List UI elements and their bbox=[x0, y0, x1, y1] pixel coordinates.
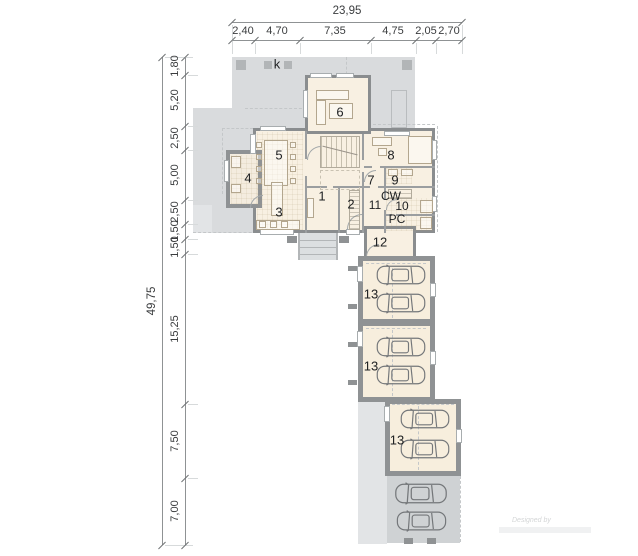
toilet bbox=[231, 156, 241, 168]
porch-column bbox=[339, 236, 349, 243]
garage-door-gap bbox=[357, 266, 363, 282]
partition-wall bbox=[362, 134, 364, 160]
chair bbox=[290, 142, 296, 148]
washer bbox=[420, 200, 433, 213]
window bbox=[384, 131, 410, 136]
car-icon bbox=[376, 292, 426, 314]
garage-window bbox=[456, 429, 462, 443]
roof-dash-line bbox=[373, 124, 435, 125]
dim-extension bbox=[188, 224, 198, 225]
dim-left-seg-8: 7,50 bbox=[169, 430, 181, 451]
partition-wall bbox=[378, 186, 435, 188]
dim-left-total-line bbox=[162, 57, 163, 545]
dim-extension bbox=[188, 254, 198, 255]
garage-label-13a: 13 bbox=[364, 287, 378, 302]
dim-top-total: 23,95 bbox=[333, 5, 362, 17]
floor-plan-canvas: k bbox=[0, 0, 638, 556]
bath-fixture bbox=[401, 169, 413, 176]
dim-extension bbox=[188, 126, 198, 127]
dim-left-seg-0: 1,80 bbox=[169, 55, 181, 76]
bed bbox=[408, 136, 432, 164]
dim-extension bbox=[188, 404, 198, 405]
wall-stub bbox=[348, 266, 357, 271]
car-icon bbox=[396, 510, 447, 532]
partition-wall bbox=[364, 166, 372, 168]
entrance-steps bbox=[298, 233, 338, 260]
dim-extension bbox=[371, 43, 372, 54]
bay-dash bbox=[392, 404, 454, 405]
room-label-4: 4 bbox=[244, 171, 251, 186]
chair bbox=[290, 154, 296, 160]
partition-wall bbox=[384, 168, 386, 186]
garage-window bbox=[430, 283, 436, 297]
dim-extension bbox=[300, 43, 301, 54]
car-icon bbox=[376, 336, 426, 358]
car-icon bbox=[400, 438, 450, 460]
chair bbox=[378, 148, 387, 156]
column-mark-label: k bbox=[274, 57, 281, 72]
dim-left-seg-6: 1,50 bbox=[169, 236, 181, 257]
basin bbox=[231, 184, 241, 193]
boiler bbox=[420, 217, 432, 229]
chair bbox=[256, 142, 262, 148]
dim-extension bbox=[416, 43, 417, 54]
dim-top-seg-2: 7,35 bbox=[324, 25, 345, 37]
chair bbox=[290, 178, 296, 184]
dim-top-seg-4: 2,05 bbox=[415, 25, 436, 37]
garage-door-gap bbox=[357, 331, 363, 347]
dim-top-seg-1: 4,70 bbox=[266, 25, 287, 37]
room-label-1: 1 bbox=[318, 189, 325, 204]
hall-bench bbox=[307, 198, 314, 218]
garage-label-13b: 13 bbox=[364, 359, 378, 374]
window bbox=[310, 73, 332, 78]
garage-label-13c: 13 bbox=[390, 433, 404, 448]
parking-walkway bbox=[368, 474, 387, 543]
window bbox=[224, 160, 229, 182]
room-label-pc: PC bbox=[389, 212, 406, 226]
watermark-blur-bar bbox=[499, 527, 591, 533]
room-label-5: 5 bbox=[275, 148, 282, 163]
wall-stub bbox=[348, 342, 357, 347]
bay-dash bbox=[366, 328, 426, 329]
chair bbox=[290, 166, 296, 172]
partition-wall bbox=[380, 166, 435, 168]
terrace-column bbox=[236, 60, 246, 70]
car-icon bbox=[376, 364, 426, 386]
walkway-notch bbox=[193, 205, 212, 233]
dim-left-segment-line bbox=[185, 57, 186, 545]
window bbox=[432, 140, 437, 160]
sofa bbox=[316, 90, 349, 100]
dim-top-segment-line bbox=[232, 40, 462, 41]
window bbox=[260, 126, 286, 131]
sofa bbox=[316, 100, 326, 125]
appliance bbox=[270, 221, 277, 228]
garage-door-gap bbox=[384, 406, 390, 422]
car-icon bbox=[400, 408, 450, 430]
room-label-9: 9 bbox=[391, 173, 398, 188]
window bbox=[303, 90, 308, 118]
room-label-12: 12 bbox=[373, 235, 387, 250]
room-label-6: 6 bbox=[336, 105, 343, 120]
dim-extension bbox=[188, 200, 198, 201]
step-line bbox=[300, 240, 336, 241]
dim-left-seg-2: 2,50 bbox=[169, 127, 181, 148]
dim-extension bbox=[188, 239, 198, 240]
terrace-column bbox=[402, 60, 412, 70]
dim-top-seg-3: 4,75 bbox=[382, 25, 403, 37]
dim-extension bbox=[436, 43, 437, 54]
dim-extension bbox=[165, 545, 193, 546]
car-icon bbox=[394, 482, 448, 505]
porch-column bbox=[287, 236, 297, 243]
dim-left-seg-3: 5,00 bbox=[169, 164, 181, 185]
wall-stub bbox=[348, 380, 357, 385]
dim-extension bbox=[188, 75, 198, 76]
dim-left-total: 49,75 bbox=[146, 287, 158, 316]
room-label-7: 7 bbox=[367, 173, 374, 188]
appliance bbox=[281, 221, 288, 228]
room-label-8: 8 bbox=[387, 148, 394, 163]
terrace-column bbox=[264, 61, 272, 69]
room-label-3: 3 bbox=[275, 205, 282, 220]
desk bbox=[372, 137, 392, 146]
dim-left-seg-1: 5,20 bbox=[169, 89, 181, 110]
dim-top-total-line bbox=[232, 22, 462, 23]
terrace-column bbox=[284, 61, 292, 69]
appliance bbox=[259, 221, 266, 228]
roof-dash-line bbox=[222, 128, 223, 194]
dim-top-seg-0: 2,40 bbox=[232, 25, 253, 37]
dim-top-seg-5: 2,70 bbox=[438, 25, 459, 37]
step-line bbox=[300, 254, 336, 255]
staircase-dashed-extension bbox=[320, 170, 360, 190]
dim-extension bbox=[188, 150, 198, 151]
room-label-10: 10 bbox=[395, 199, 408, 213]
room-label-11: 11 bbox=[369, 198, 381, 212]
roof-dash-line bbox=[437, 126, 438, 232]
step-line bbox=[300, 247, 336, 248]
chair bbox=[256, 166, 262, 172]
dim-left-seg-7: 15,25 bbox=[169, 315, 181, 343]
staircase bbox=[320, 136, 360, 168]
chair bbox=[256, 154, 262, 160]
parking-column bbox=[404, 538, 413, 544]
car-icon bbox=[376, 264, 426, 286]
dim-left-seg-9: 7,00 bbox=[169, 500, 181, 521]
chair bbox=[256, 178, 262, 184]
garage-window bbox=[430, 351, 436, 365]
watermark-text: Designed by bbox=[512, 517, 551, 524]
roof-dash-line bbox=[222, 128, 253, 129]
room-label-2: 2 bbox=[347, 197, 354, 212]
parking-column bbox=[427, 538, 436, 544]
dim-extension bbox=[255, 43, 256, 54]
dim-extension bbox=[188, 478, 198, 479]
terrace-lounge-outline bbox=[391, 90, 407, 128]
roof-dash-line bbox=[460, 476, 461, 542]
wall-stub bbox=[348, 304, 357, 309]
window bbox=[336, 73, 354, 78]
partition-wall bbox=[338, 186, 340, 233]
